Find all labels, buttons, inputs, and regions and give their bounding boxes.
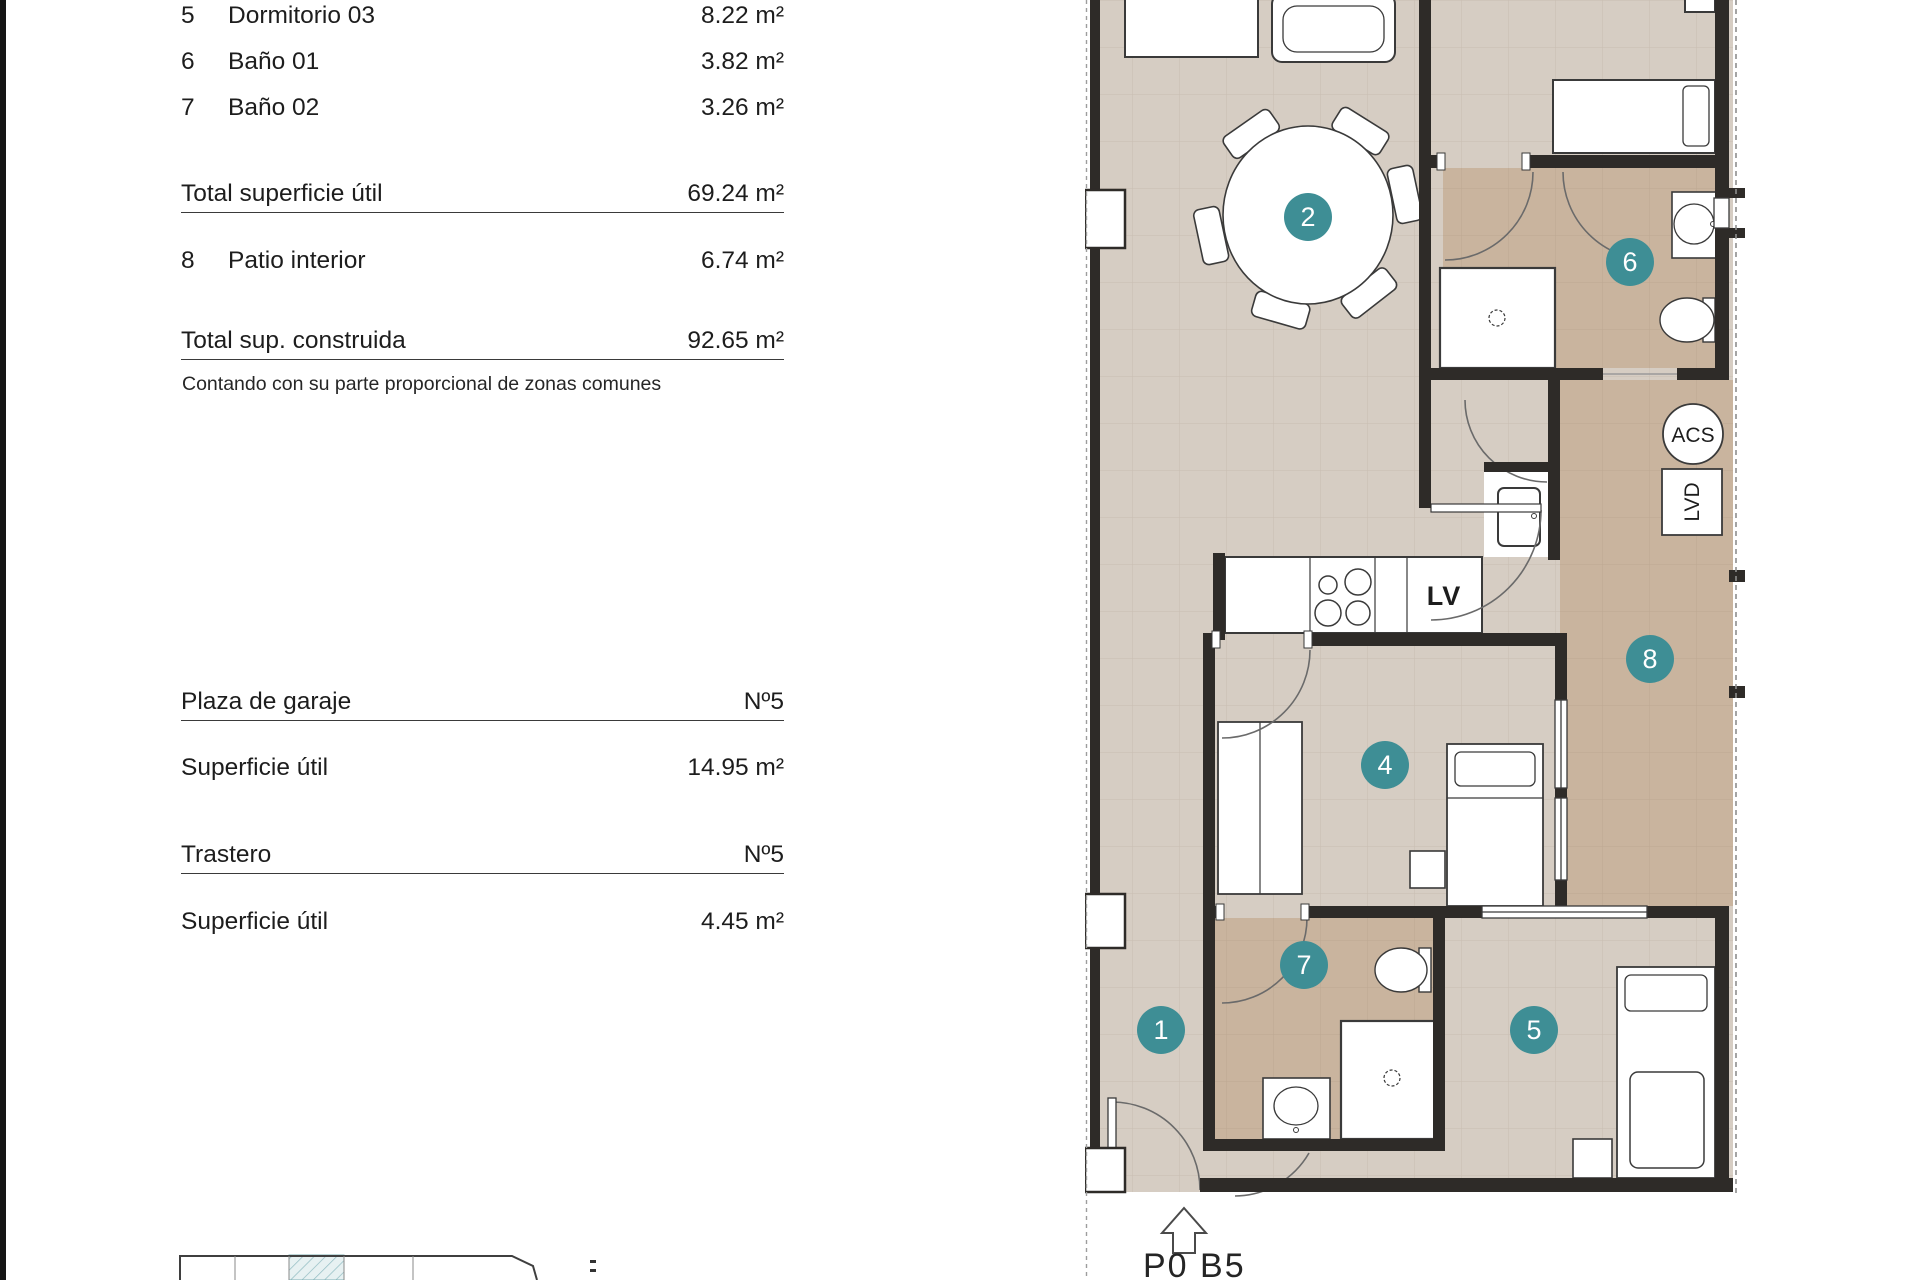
svg-text:5: 5: [1526, 1015, 1541, 1045]
sheet-label: P0 B5: [1143, 1247, 1246, 1280]
living-sideboard: [1125, 0, 1258, 57]
bath1-toilet: [1660, 298, 1714, 342]
page-edge: [0, 0, 6, 1280]
room-name: Baño 01: [228, 48, 319, 75]
area-label: Superficie útil: [181, 754, 328, 781]
key-plan-tick-marks: [590, 1260, 596, 1272]
room-number: 5: [181, 2, 228, 29]
floor-plan: ACS LVD LV 1 2 4 5 6 7 8: [1085, 0, 1745, 1280]
bath2-sink-basin: [1274, 1087, 1318, 1125]
table-row: 5 Dormitorio 03 8.22 m²: [181, 2, 784, 29]
bath2-shower-tray: [1341, 1021, 1442, 1139]
armchair: [1272, 0, 1395, 62]
lvd-label: LVD: [1681, 482, 1704, 521]
garage-number: Nº5: [744, 688, 784, 715]
bath2-sink-tap: [1294, 1128, 1299, 1133]
key-plan: [175, 1248, 625, 1280]
svg-text:1: 1: [1153, 1015, 1168, 1045]
garage-row: Plaza de garaje Nº5: [181, 688, 784, 721]
bedroom-top-nightstand: [1685, 0, 1715, 12]
key-plan-highlighted-unit: [289, 1255, 344, 1280]
bedroom-top-pillow: [1683, 86, 1709, 146]
total-value: 92.65 m²: [687, 327, 784, 354]
svg-text:2: 2: [1300, 202, 1315, 232]
room-name: Patio interior: [228, 247, 366, 274]
room-marker-6: 6: [1606, 238, 1654, 286]
storage-row: Trastero Nº5: [181, 841, 784, 874]
total-value: 69.24 m²: [687, 180, 784, 207]
acs-label: ACS: [1671, 424, 1714, 447]
room-area: 6.74 m²: [701, 247, 784, 274]
bath1-sink-basin: [1674, 204, 1714, 244]
svg-text:4: 4: [1377, 750, 1392, 780]
storage-number: Nº5: [744, 841, 784, 868]
room-marker-5: 5: [1510, 1006, 1558, 1054]
lv-label: LV: [1427, 581, 1462, 611]
garage-area-row: Superficie útil 14.95 m²: [181, 754, 784, 781]
room-marker-2: 2: [1284, 193, 1332, 241]
key-plan-outline: [180, 1256, 537, 1280]
door-leaf-corridor: [1431, 504, 1541, 512]
room-number: 6: [181, 48, 228, 75]
patio-row: 8 Patio interior 6.74 m²: [181, 247, 784, 274]
room-area: 8.22 m²: [701, 2, 784, 29]
svg-text:8: 8: [1642, 644, 1657, 674]
room-number: 7: [181, 94, 228, 121]
room-marker-8: 8: [1626, 635, 1674, 683]
room-marker-7: 7: [1280, 941, 1328, 989]
fridge-handle: [1532, 514, 1537, 519]
total-label: Total superficie útil: [181, 180, 383, 207]
room-area: 3.26 m²: [701, 94, 784, 121]
bedroom3-nightstand: [1573, 1139, 1612, 1178]
storage-label: Trastero: [181, 841, 271, 868]
table-row: 6 Baño 01 3.82 m²: [181, 48, 784, 75]
room-name: Baño 02: [228, 94, 319, 121]
room-marker-4: 4: [1361, 741, 1409, 789]
room-area: 3.82 m²: [701, 48, 784, 75]
total-label: Total sup. construida: [181, 327, 406, 354]
proportional-note: Contando con su parte proporcional de zo…: [182, 373, 661, 396]
area-label: Superficie útil: [181, 908, 328, 935]
bedroom2-nightstand: [1410, 851, 1445, 888]
area-value: 14.95 m²: [687, 754, 784, 781]
bedroom2-pillow: [1455, 752, 1535, 786]
total-useful-area-row: Total superficie útil 69.24 m²: [181, 180, 784, 213]
room-number: 8: [181, 247, 228, 274]
area-value: 4.45 m²: [701, 908, 784, 935]
room-name: Dormitorio 03: [228, 2, 375, 29]
storage-area-row: Superficie útil 4.45 m²: [181, 908, 784, 935]
bedroom3-pillow: [1625, 975, 1707, 1011]
table-row: 7 Baño 02 3.26 m²: [181, 94, 784, 121]
total-built-area-row: Total sup. construida 92.65 m²: [181, 327, 784, 360]
svg-text:7: 7: [1296, 950, 1311, 980]
svg-text:6: 6: [1622, 247, 1637, 277]
bath1-shower-tray: [1440, 268, 1555, 368]
garage-label: Plaza de garaje: [181, 688, 351, 715]
bath2-toilet: [1375, 948, 1427, 992]
room-marker-1: 1: [1137, 1006, 1185, 1054]
